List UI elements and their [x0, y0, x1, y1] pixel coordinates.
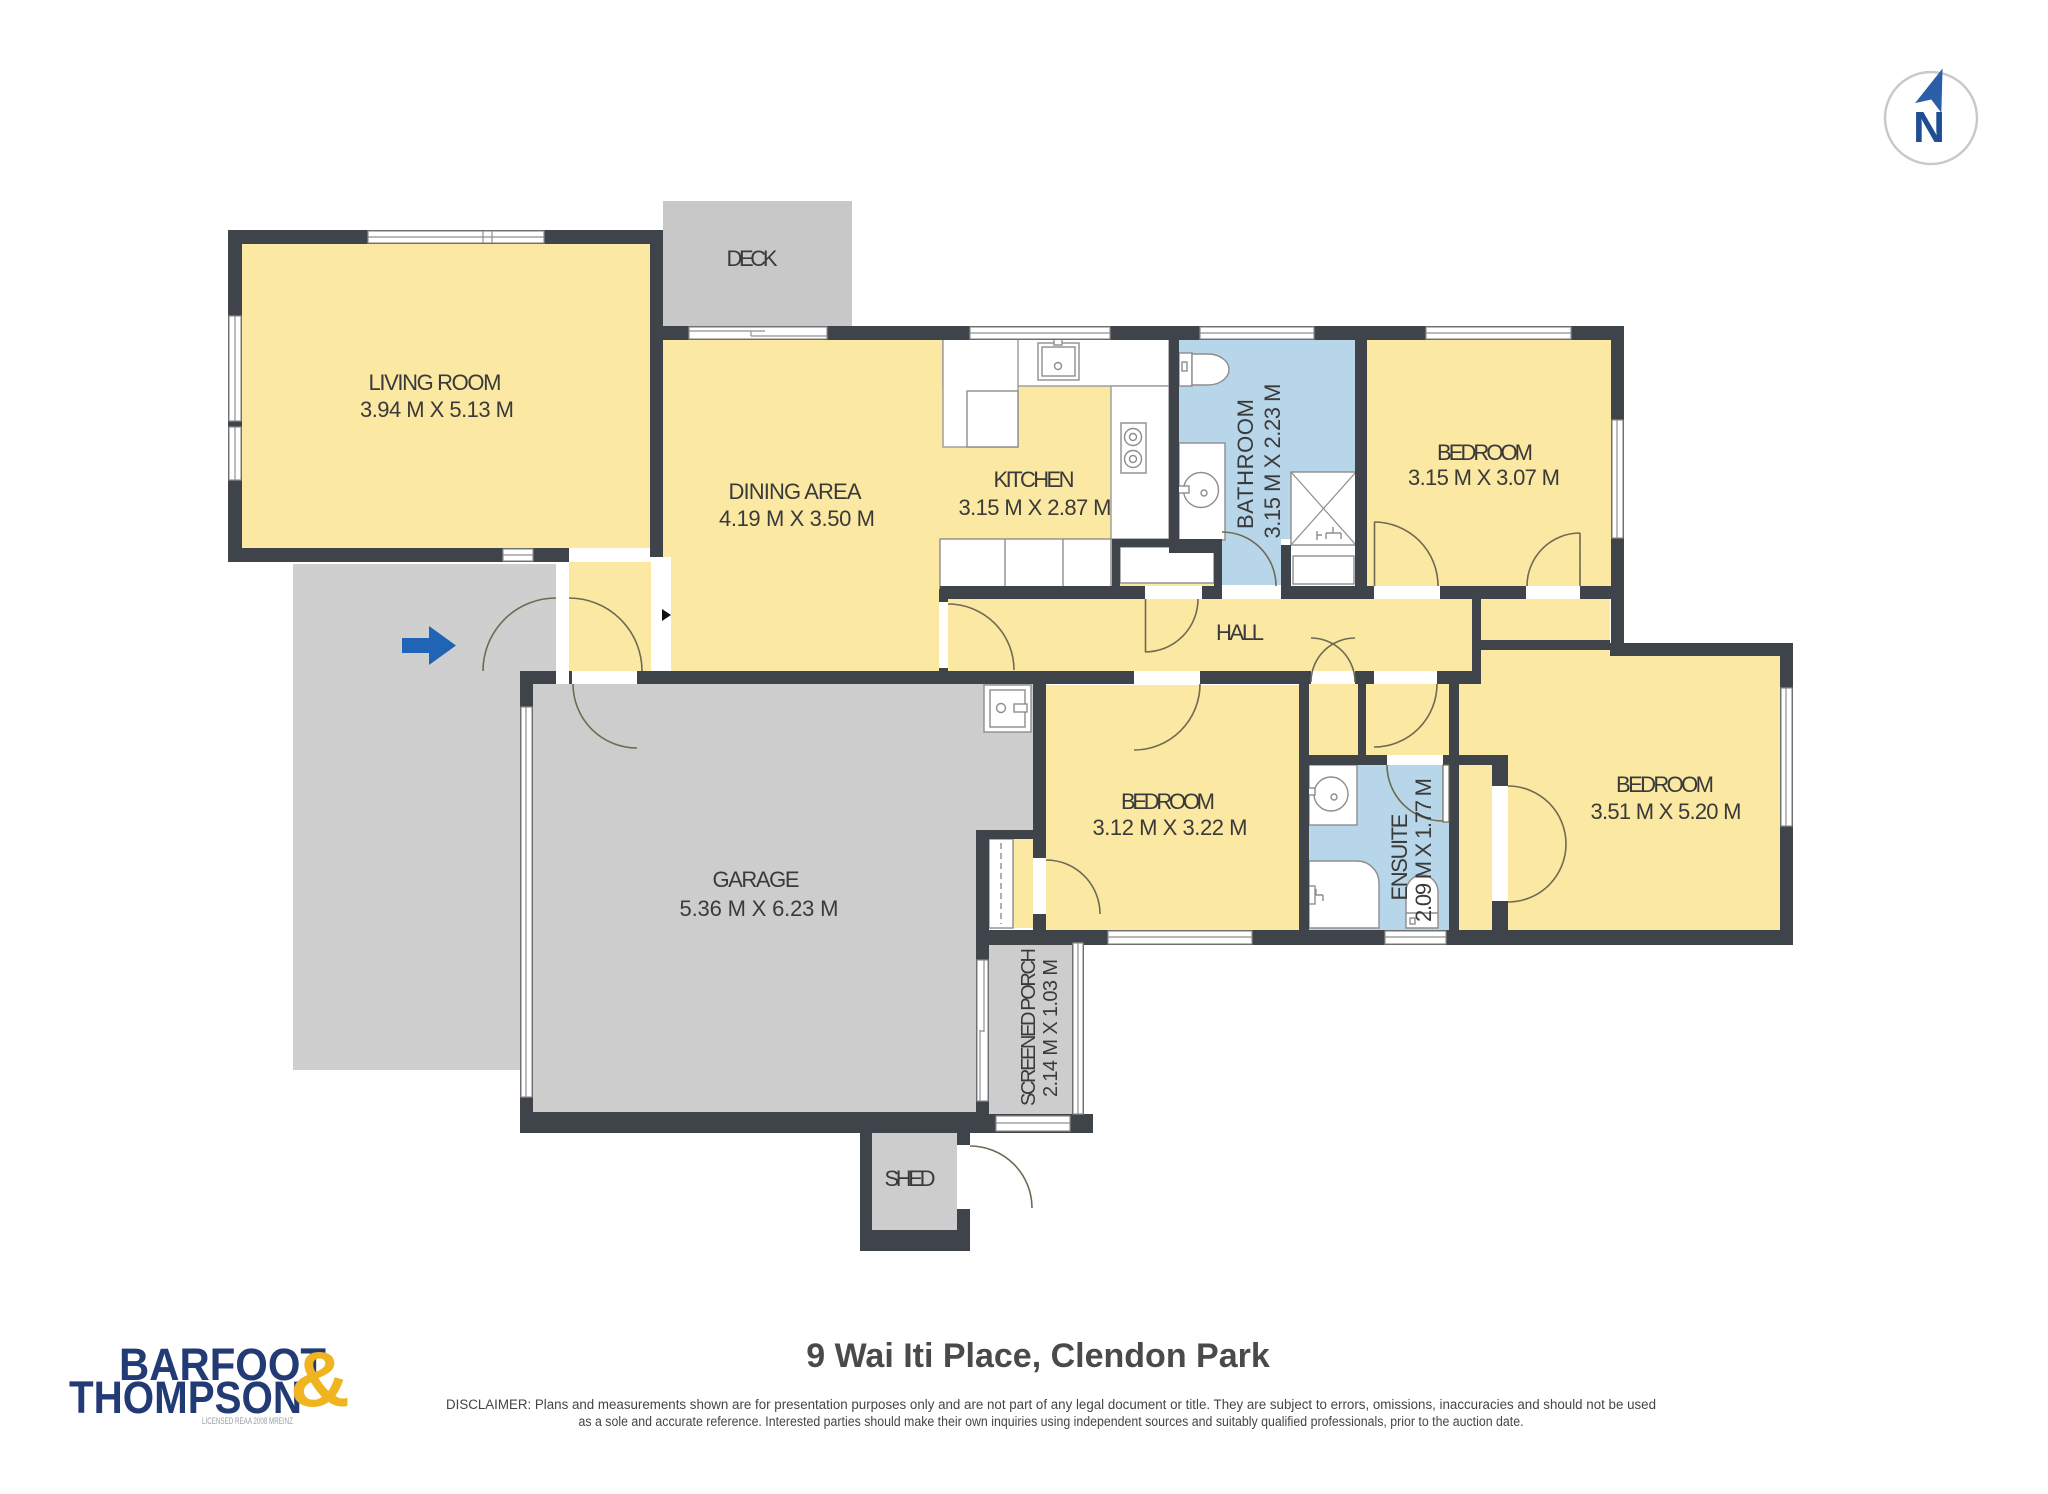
svg-text:4.19 M X 3.50 M: 4.19 M X 3.50 M: [719, 506, 875, 531]
svg-text:BATHROOM: BATHROOM: [1233, 399, 1258, 529]
svg-text:3.12 M X 3.22 M: 3.12 M X 3.22 M: [1093, 815, 1248, 840]
svg-text:3.15 M X 2.23 M: 3.15 M X 2.23 M: [1260, 384, 1285, 539]
svg-text:3.15 M X 3.07 M: 3.15 M X 3.07 M: [1408, 465, 1560, 490]
svg-text:HALL: HALL: [1216, 620, 1264, 645]
svg-text:LIVING ROOM: LIVING ROOM: [369, 370, 502, 395]
svg-text:2.09 M X 1.77 M: 2.09 M X 1.77 M: [1411, 778, 1436, 922]
svg-text:DECK: DECK: [727, 246, 778, 271]
svg-text:KITCHEN: KITCHEN: [994, 467, 1075, 492]
svg-text:9 Wai Iti Place, Clendon Park: 9 Wai Iti Place, Clendon Park: [806, 1337, 1270, 1375]
svg-text:2.14 M X 1.03 M: 2.14 M X 1.03 M: [1040, 959, 1062, 1097]
svg-text:DINING AREA: DINING AREA: [729, 479, 862, 504]
svg-text:SCREENED PORCH: SCREENED PORCH: [1018, 948, 1040, 1106]
svg-text:SHED: SHED: [885, 1166, 936, 1191]
svg-text:as a sole and accurate referen: as a sole and accurate reference. Intere…: [579, 1414, 1524, 1429]
svg-text:N: N: [1913, 103, 1945, 152]
svg-text:&: &: [290, 1335, 350, 1423]
svg-text:3.94 M X 5.13 M: 3.94 M X 5.13 M: [360, 397, 514, 422]
svg-text:3.51 M X 5.20 M: 3.51 M X 5.20 M: [1591, 799, 1742, 824]
svg-text:BEDROOM: BEDROOM: [1616, 772, 1714, 797]
svg-text:ENSUITE: ENSUITE: [1387, 814, 1412, 901]
svg-text:3.15 M X 2.87 M: 3.15 M X 2.87 M: [959, 495, 1112, 520]
svg-text:BEDROOM: BEDROOM: [1437, 440, 1533, 465]
svg-text:BEDROOM: BEDROOM: [1121, 789, 1215, 814]
svg-text:5.36 M X 6.23 M: 5.36 M X 6.23 M: [680, 896, 839, 921]
svg-text:GARAGE: GARAGE: [713, 867, 800, 892]
svg-text:DISCLAIMER: Plans and measurem: DISCLAIMER: Plans and measurements shown…: [446, 1397, 1656, 1412]
svg-text:LICENSED REAA 2008 MREINZ: LICENSED REAA 2008 MREINZ: [202, 1416, 293, 1426]
